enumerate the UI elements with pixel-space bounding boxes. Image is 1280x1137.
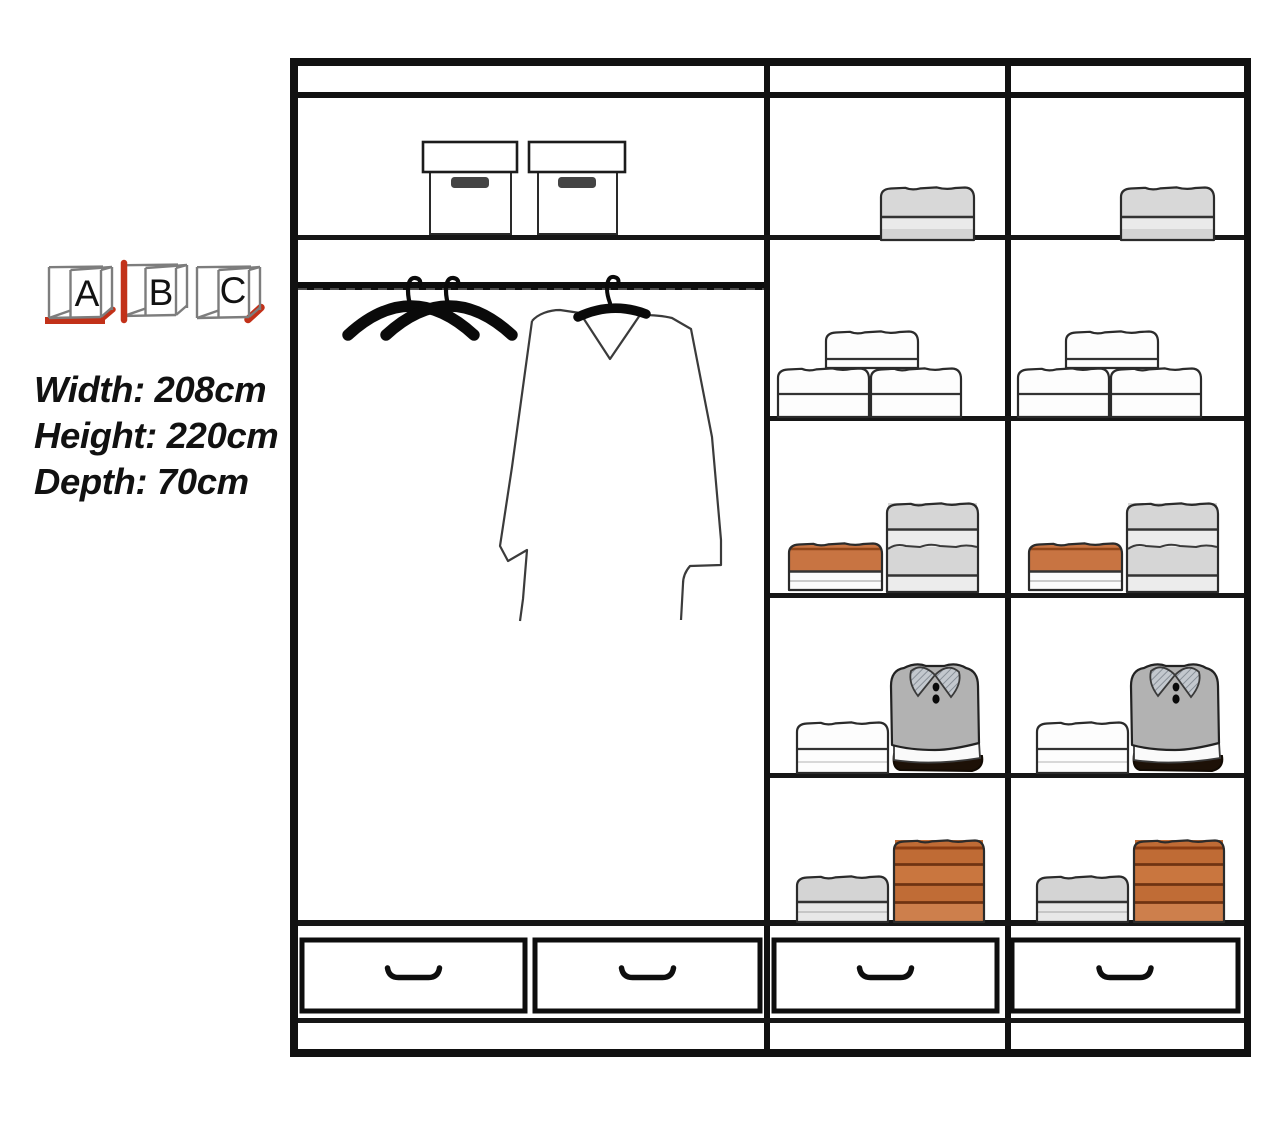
svg-text:B: B bbox=[149, 272, 174, 313]
svg-text:Width: 208cm: Width: 208cm bbox=[34, 369, 266, 410]
svg-text:A: A bbox=[75, 273, 100, 314]
svg-text:C: C bbox=[220, 270, 247, 311]
svg-text:Height: 220cm: Height: 220cm bbox=[34, 415, 278, 456]
svg-text:Depth: 70cm: Depth: 70cm bbox=[34, 461, 249, 502]
